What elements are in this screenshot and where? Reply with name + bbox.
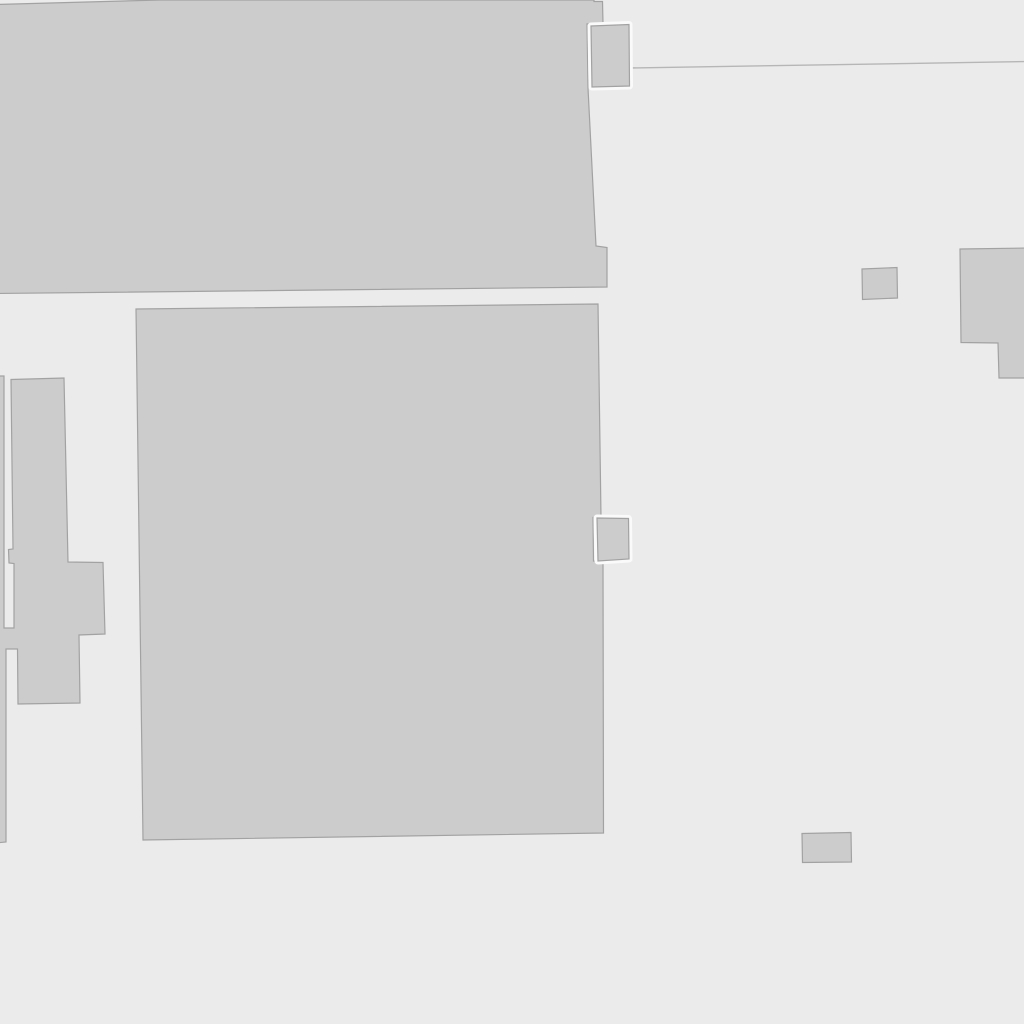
building-footprint-right-edge-L[interactable] [960,248,1024,378]
building-footprint-top-left[interactable] [0,0,607,294]
building-footprint-left-complex[interactable] [0,376,105,843]
boundary-line [629,62,1024,69]
building-footprint-center-large[interactable] [136,304,604,840]
building-footprint-small-middle[interactable] [597,518,629,561]
building-footprint-small-square-right[interactable] [862,268,898,300]
map-viewport[interactable] [0,0,1024,1024]
building-footprint-small-bottom[interactable] [802,833,852,863]
building-footprint-small-top[interactable] [591,25,630,88]
map-canvas[interactable] [0,0,1024,1024]
